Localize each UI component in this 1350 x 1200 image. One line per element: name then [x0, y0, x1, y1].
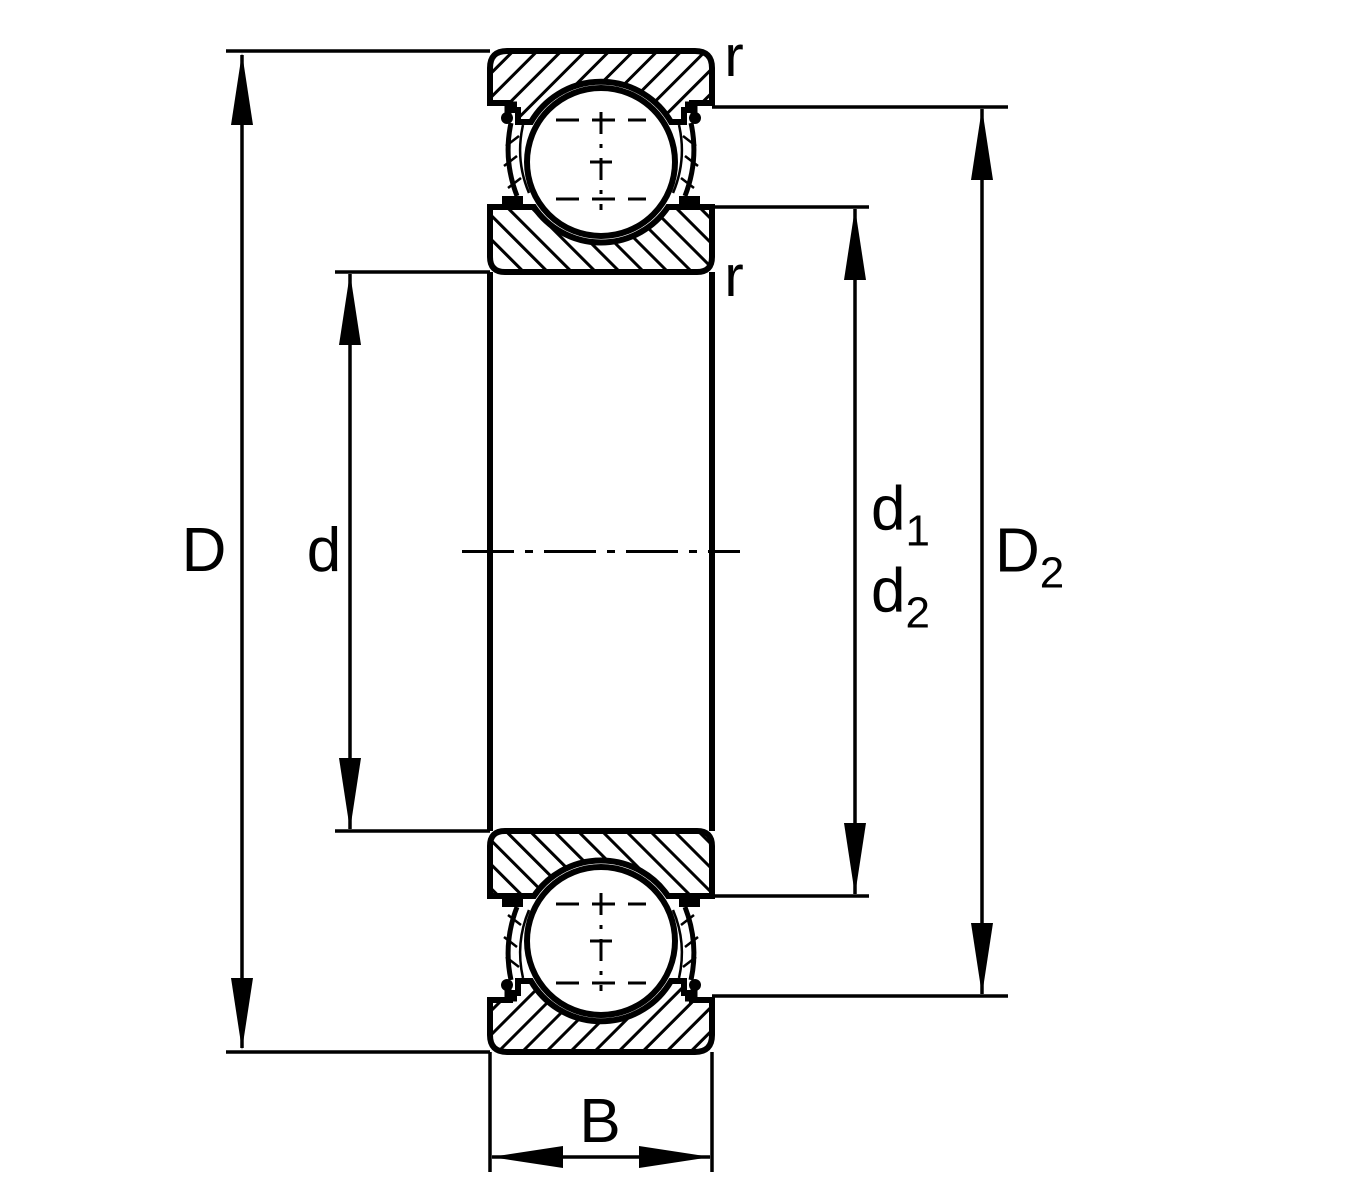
bearing-cross-section-svg — [0, 0, 1350, 1200]
label-outer-diameter-D: D — [182, 520, 227, 582]
label-bore-diameter-d: d — [307, 520, 341, 582]
label-d2-sub: 2 — [905, 589, 929, 638]
label-D2-sub: 2 — [1040, 549, 1064, 598]
dimension-d1-d2 — [844, 208, 866, 895]
label-d1-base: d — [871, 475, 905, 544]
label-shoulder-diameter-D2: D2 — [995, 521, 1064, 596]
label-chamfer-r-outer: r — [724, 28, 743, 86]
bore-side-lines — [490, 272, 712, 831]
bearing-dimension-drawing: D d d1 d2 D2 B r r — [0, 0, 1350, 1200]
label-d1-sub: 1 — [905, 507, 929, 556]
label-recess-diameter-d1: d1 — [871, 479, 930, 554]
top-section — [490, 51, 712, 272]
bottom-section — [490, 831, 712, 1052]
label-d2-base: d — [871, 557, 905, 626]
dimension-D — [231, 53, 253, 1050]
label-D2-base: D — [995, 517, 1040, 586]
label-recess-diameter-d2: d2 — [871, 561, 930, 636]
label-width-B: B — [579, 1091, 620, 1153]
dimension-d — [339, 273, 361, 830]
dimension-D2 — [971, 108, 993, 995]
label-chamfer-r-inner: r — [724, 248, 743, 306]
